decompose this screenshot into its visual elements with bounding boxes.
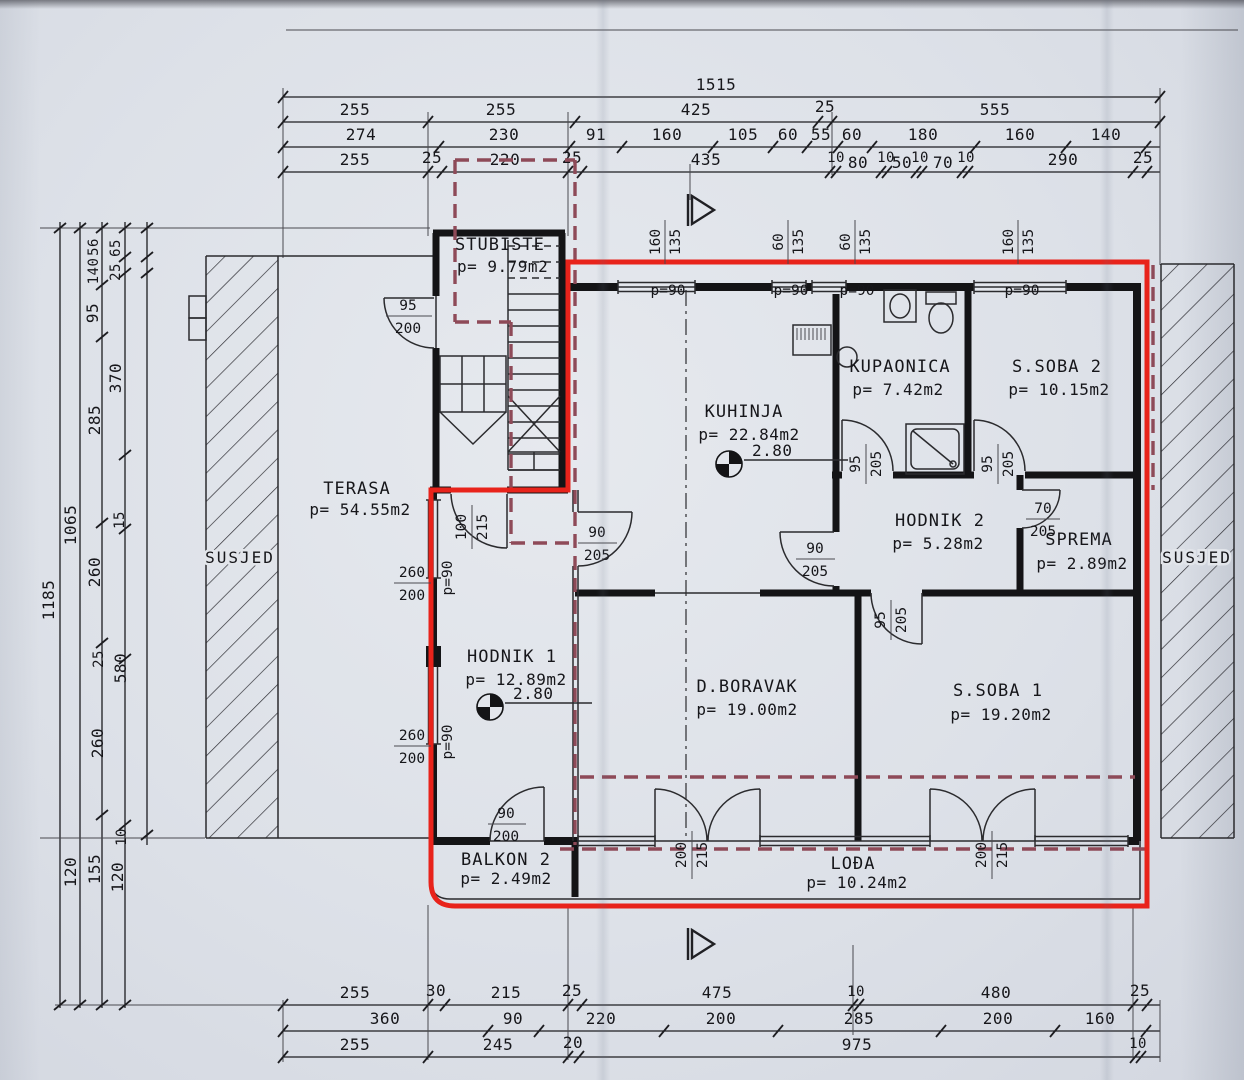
- door-size-sprema: 70205: [1026, 501, 1060, 540]
- door-size-lodja-b: 200215: [974, 831, 1011, 879]
- dim-top: 60: [778, 125, 798, 144]
- dim-bottom: 25: [1130, 981, 1150, 1000]
- dim-bottom: 10: [847, 984, 865, 1000]
- dim-left: 155: [85, 854, 104, 884]
- svg-text:215: 215: [475, 514, 491, 540]
- svg-text:100: 100: [454, 514, 470, 540]
- room-label-dboravak: D.BORAVAKp= 19.00m2: [696, 677, 797, 719]
- dim-left: 15: [112, 511, 128, 529]
- window-bottom-2: [760, 835, 930, 847]
- dim-bottom: 90: [503, 1009, 523, 1028]
- room-label-ssoba2: S.SOBA 2p= 10.15m2: [1008, 357, 1109, 399]
- dim-left: 65: [108, 239, 124, 257]
- dim-top: 160: [1005, 125, 1035, 144]
- window-size-label: 260200: [394, 728, 431, 767]
- window-size-label: 260200: [394, 565, 431, 604]
- susjed-left-label: SUSJED: [205, 548, 275, 567]
- door-size-entry: 95200: [386, 298, 432, 337]
- dim-top: 255: [340, 150, 370, 169]
- svg-text:200: 200: [493, 829, 519, 845]
- svg-text:95: 95: [873, 611, 889, 628]
- svg-text:KUPAONICA: KUPAONICA: [849, 357, 950, 377]
- window-bottom-3: [1035, 835, 1128, 847]
- window-size-label: 60135: [771, 220, 807, 264]
- parapet-label: p=90: [774, 283, 809, 299]
- dim-bottom: 285: [844, 1009, 874, 1028]
- dim-bottom: 475: [702, 983, 732, 1002]
- dim-top: 25: [815, 97, 835, 116]
- svg-text:200: 200: [395, 321, 421, 337]
- svg-text:2.80: 2.80: [752, 441, 793, 460]
- dim-top: 230: [489, 125, 519, 144]
- dim-top: 55: [811, 125, 831, 144]
- svg-text:135: 135: [1021, 229, 1037, 255]
- door-size-hodnik1: 100215: [454, 505, 491, 549]
- door-size-balkon: 90200: [488, 806, 526, 845]
- walls: [430, 233, 1140, 899]
- section-marker-top: [688, 194, 714, 226]
- dim-left: 120: [61, 857, 80, 887]
- dim-top: 50: [892, 153, 912, 172]
- svg-text:205: 205: [869, 451, 885, 477]
- dim-bottom: 255: [340, 983, 370, 1002]
- svg-text:p= 19.00m2: p= 19.00m2: [696, 700, 797, 719]
- dim-top: 80: [848, 153, 868, 172]
- window-size-label: 160135: [648, 220, 684, 264]
- svg-text:TERASA: TERASA: [323, 479, 390, 499]
- svg-text:p= 5.28m2: p= 5.28m2: [892, 534, 983, 553]
- svg-text:p= 2.49m2: p= 2.49m2: [460, 869, 551, 888]
- svg-text:60: 60: [838, 233, 854, 250]
- svg-text:S.SOBA 1: S.SOBA 1: [953, 681, 1043, 701]
- parapet-label: p=90: [651, 283, 686, 299]
- dim-top: 10: [827, 150, 845, 166]
- dim-bottom: 975: [842, 1035, 872, 1054]
- dim-top: 255: [340, 100, 370, 119]
- svg-text:S.SOBA 2: S.SOBA 2: [1012, 357, 1102, 377]
- parapet-label: p=90: [840, 283, 875, 299]
- dim-left: 370: [106, 363, 125, 393]
- door-size-kupaonica: 95205: [848, 444, 885, 484]
- room-label-balkon2: BALKON 2p= 2.49m2: [460, 850, 551, 888]
- svg-text:200: 200: [674, 842, 690, 868]
- svg-text:p= 19.20m2: p= 19.20m2: [950, 705, 1051, 724]
- dim-left: 120: [108, 862, 127, 892]
- dim-left: 1185: [39, 580, 58, 621]
- svg-text:90: 90: [497, 806, 514, 822]
- dim-top: 25: [1133, 148, 1153, 167]
- door-size-ssoba1: 95205: [873, 600, 910, 640]
- window-size-label: 160135: [1001, 220, 1037, 264]
- room-label-terasa: TERASAp= 54.55m2: [309, 479, 410, 519]
- dim-left: 25: [108, 263, 124, 281]
- parapet-label: p=90: [440, 561, 456, 596]
- svg-text:205: 205: [802, 564, 828, 580]
- parapet-label: p=90: [1005, 283, 1040, 299]
- dim-top: 10: [957, 150, 975, 166]
- height-marker-kuhinja: 2.80: [716, 441, 848, 477]
- door-size-ssoba2: 95205: [980, 444, 1017, 484]
- svg-text:160: 160: [1001, 229, 1017, 255]
- dim-top: 555: [980, 100, 1010, 119]
- svg-text:D.BORAVAK: D.BORAVAK: [696, 677, 797, 697]
- dim-bottom: 220: [586, 1009, 616, 1028]
- svg-text:HODNIK 2: HODNIK 2: [895, 511, 985, 531]
- svg-text:p= 10.15m2: p= 10.15m2: [1008, 380, 1109, 399]
- dim-top: 25: [562, 148, 582, 167]
- floor-plan-scan: 1515 255 255 425 25 555 274 230 91 160 1…: [0, 0, 1244, 1080]
- dim-bottom: 160: [1085, 1009, 1115, 1028]
- dim-top: 70: [933, 153, 953, 172]
- dim-left: 10: [114, 828, 130, 846]
- svg-text:p= 7.42m2: p= 7.42m2: [852, 380, 943, 399]
- room-label-kuhinja: KUHINJAp= 22.84m2: [698, 402, 799, 444]
- dim-left: 260: [88, 728, 107, 758]
- parapet-label: p=90: [440, 725, 456, 760]
- svg-text:135: 135: [858, 229, 874, 255]
- dim-top: 255: [486, 100, 516, 119]
- room-label-hodnik1: HODNIK 1p= 12.89m2: [465, 647, 566, 689]
- svg-text:200: 200: [399, 751, 425, 767]
- bottom-dimension-chain: 255 30 215 25 475 10 480 25 360 90 220 2…: [278, 905, 1160, 1063]
- dim-bottom: 200: [983, 1009, 1013, 1028]
- svg-text:p= 9.79m2: p= 9.79m2: [457, 257, 548, 276]
- dim-left: 580: [111, 653, 130, 683]
- dim-top: 290: [1048, 150, 1078, 169]
- svg-text:200: 200: [399, 588, 425, 604]
- dim-top: 180: [908, 125, 938, 144]
- dim-top: 425: [681, 100, 711, 119]
- svg-text:205: 205: [1001, 451, 1017, 477]
- door-lodja-a: [655, 789, 760, 841]
- room-label-lodja: LOĐAp= 10.24m2: [806, 854, 907, 892]
- svg-text:260: 260: [399, 728, 425, 744]
- svg-text:260: 260: [399, 565, 425, 581]
- dim-bottom: 30: [426, 981, 446, 1000]
- svg-text:95: 95: [399, 298, 416, 314]
- dim-top: 25: [422, 148, 442, 167]
- svg-text:LOĐA: LOĐA: [831, 854, 876, 874]
- door-size-lodja-a: 200215: [674, 831, 711, 879]
- dim-bottom: 10: [1129, 1036, 1147, 1052]
- washbasin: [884, 290, 916, 322]
- svg-text:2.80: 2.80: [513, 684, 554, 703]
- svg-text:205: 205: [584, 548, 610, 564]
- dim-top: 435: [691, 150, 721, 169]
- svg-text:HODNIK 1: HODNIK 1: [467, 647, 557, 667]
- dim-bottom: 200: [706, 1009, 736, 1028]
- dim-bottom: 480: [981, 983, 1011, 1002]
- dim-top: 60: [842, 125, 862, 144]
- dim-top: 10: [911, 150, 929, 166]
- room-label-hodnik2: HODNIK 2p= 5.28m2: [892, 511, 985, 553]
- dim-bottom: 255: [340, 1035, 370, 1054]
- doors: [384, 298, 1060, 841]
- dim-left: 140: [86, 258, 102, 285]
- dim-left: 25: [91, 650, 107, 668]
- svg-text:205: 205: [894, 607, 910, 633]
- dim-top: 160: [652, 125, 682, 144]
- dim-left: 95: [83, 303, 102, 323]
- dim-bottom: 20: [563, 1033, 583, 1052]
- svg-text:200: 200: [974, 842, 990, 868]
- dim-bottom: 215: [491, 983, 521, 1002]
- svg-text:215: 215: [995, 842, 1011, 868]
- svg-text:135: 135: [668, 229, 684, 255]
- dim-left: 56: [86, 238, 102, 256]
- room-label-stubiste: STUBIŠTEp= 9.79m2: [455, 233, 548, 276]
- dim-bottom: 360: [370, 1009, 400, 1028]
- shower: [906, 424, 964, 474]
- dim-top: 105: [728, 125, 758, 144]
- svg-text:p= 10.24m2: p= 10.24m2: [806, 873, 907, 892]
- svg-text:70: 70: [1034, 501, 1051, 517]
- floor-plan-drawing: 1515 255 255 425 25 555 274 230 91 160 1…: [0, 0, 1244, 1080]
- room-label-kupaonica: KUPAONICAp= 7.42m2: [849, 357, 950, 399]
- dim-bottom: 25: [562, 981, 582, 1000]
- dim-top: 140: [1091, 125, 1121, 144]
- window-bottom-1: [578, 835, 655, 847]
- door-size-kuhinja-west: 90205: [578, 525, 617, 564]
- svg-text:90: 90: [806, 541, 823, 557]
- dim-left: 1065: [61, 505, 80, 546]
- svg-text:95: 95: [848, 455, 864, 472]
- dim-left: 285: [85, 405, 104, 435]
- toilet: [926, 292, 956, 333]
- dim-top: 274: [346, 125, 376, 144]
- dim-top: 91: [586, 125, 606, 144]
- svg-text:135: 135: [791, 229, 807, 255]
- svg-text:215: 215: [695, 842, 711, 868]
- svg-text:60: 60: [771, 233, 787, 250]
- kitchen-appliance: [793, 325, 831, 355]
- door-size-kuhinja-east: 90205: [796, 541, 835, 580]
- room-label-ssoba1: S.SOBA 1p= 19.20m2: [950, 681, 1051, 724]
- svg-text:KUHINJA: KUHINJA: [705, 402, 784, 422]
- dim-left: 260: [85, 557, 104, 587]
- svg-text:205: 205: [1030, 524, 1056, 540]
- susjed-right-label: SUSJED: [1162, 548, 1232, 567]
- window-size-label: 60135: [838, 220, 874, 264]
- svg-text:BALKON 2: BALKON 2: [461, 850, 551, 870]
- svg-text:160: 160: [648, 229, 664, 255]
- svg-text:STUBIŠTE: STUBIŠTE: [455, 233, 545, 255]
- svg-text:90: 90: [588, 525, 605, 541]
- door-lodja-b: [930, 789, 1035, 841]
- section-marker-bottom: [688, 928, 714, 960]
- svg-text:95: 95: [980, 455, 996, 472]
- dim-top: 1515: [696, 75, 737, 94]
- dim-bottom: 245: [483, 1035, 513, 1054]
- svg-text:p= 54.55m2: p= 54.55m2: [309, 500, 410, 519]
- svg-text:p= 2.89m2: p= 2.89m2: [1036, 554, 1127, 573]
